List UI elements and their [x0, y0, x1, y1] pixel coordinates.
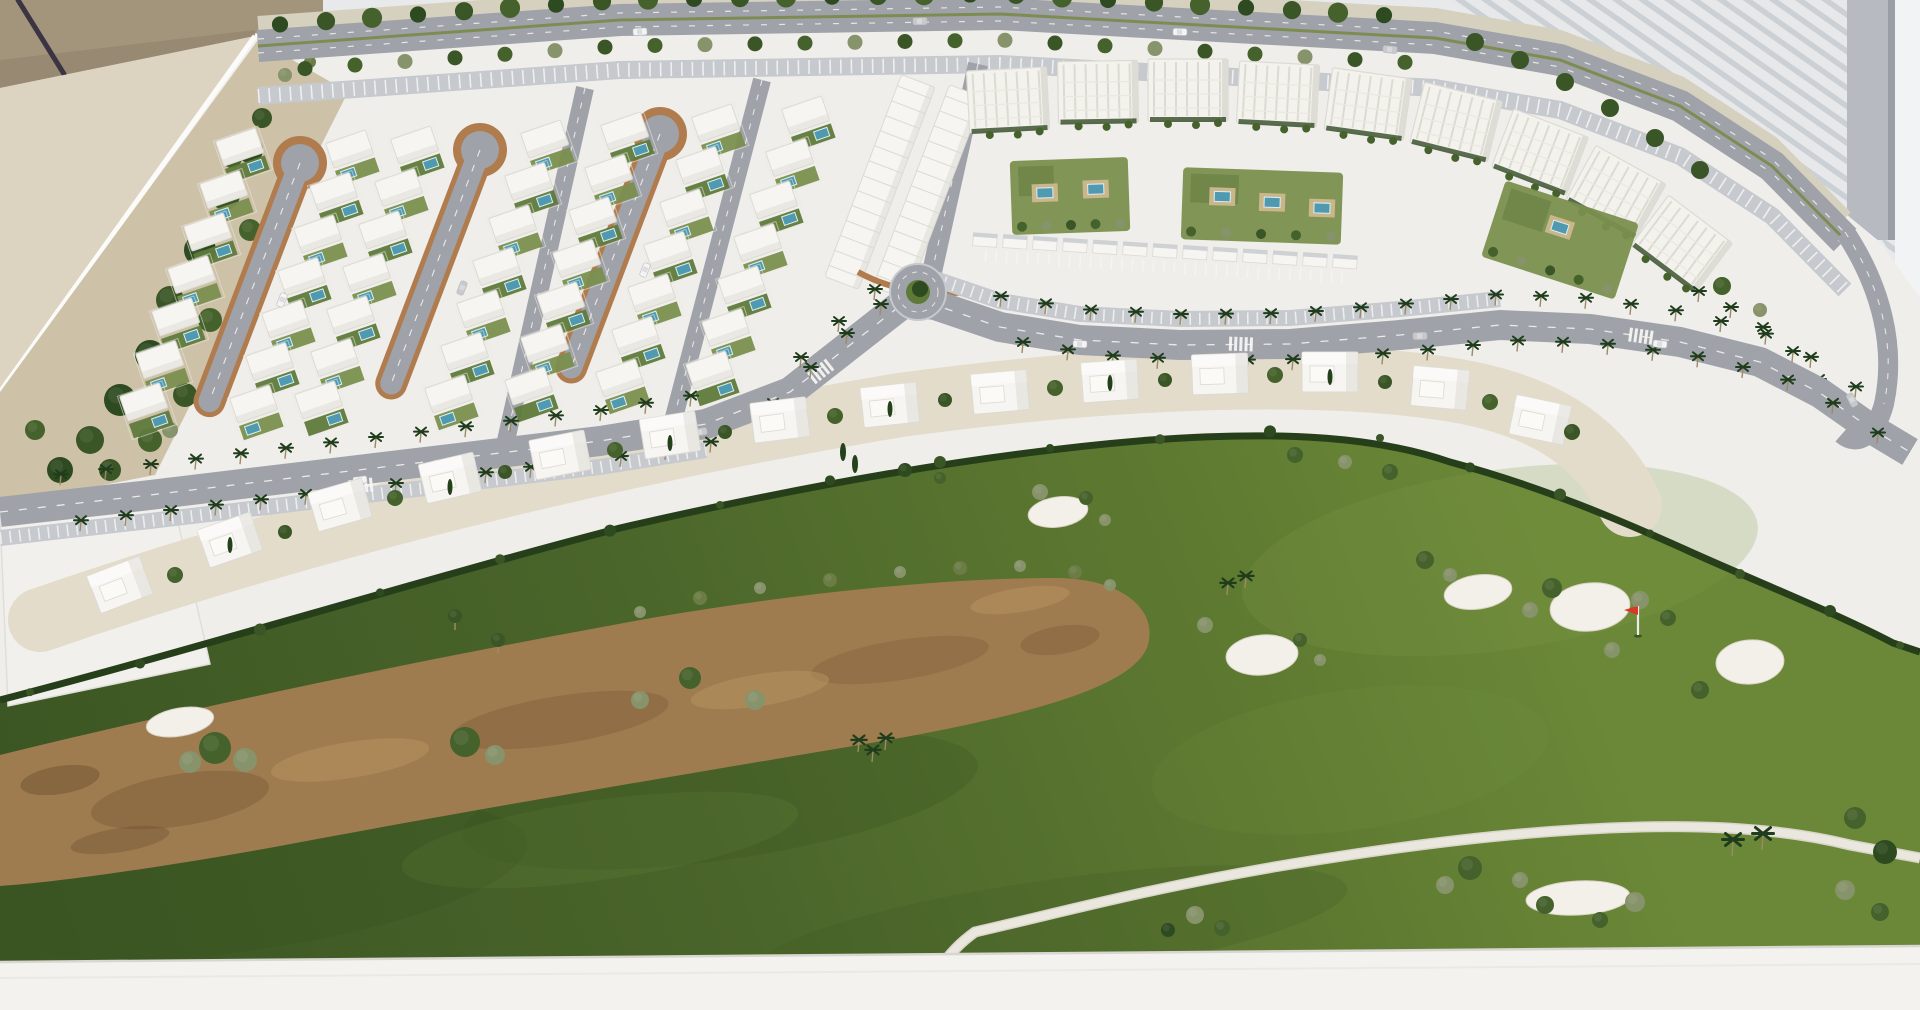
- pool: [1037, 188, 1053, 199]
- palm-trunk: [880, 305, 881, 315]
- tree-highlight: [1461, 858, 1473, 870]
- tree-highlight: [940, 394, 947, 401]
- boulevard-tree: [1556, 73, 1574, 91]
- car-glass: [1077, 341, 1082, 346]
- palm-trunk: [1720, 322, 1721, 332]
- hedge-bush: [1735, 569, 1745, 579]
- tree-highlight: [1188, 908, 1197, 917]
- palm-trunk: [1742, 368, 1743, 378]
- median-tree: [1298, 49, 1313, 64]
- palm-trunk: [1810, 358, 1811, 368]
- palm-trunk: [1832, 404, 1833, 414]
- palm-trunk: [1855, 388, 1856, 398]
- palm-trunk: [872, 751, 873, 762]
- palm-trunk: [645, 404, 646, 414]
- wall-sliver: [1895, 0, 1920, 300]
- median-tree: [398, 54, 413, 69]
- tree-highlight: [609, 444, 617, 452]
- median-tree: [898, 34, 913, 49]
- palm-trunk: [240, 454, 241, 464]
- tree-highlight: [1538, 898, 1547, 907]
- tree-highlight: [955, 562, 962, 569]
- tree-highlight: [1755, 304, 1762, 311]
- hedge-bush: [135, 659, 145, 669]
- boulevard-tree: [1466, 33, 1484, 51]
- architectural-model-photo: [0, 0, 1920, 1010]
- boulevard-tree: [1376, 7, 1392, 23]
- tree-highlight: [633, 693, 642, 702]
- tree-highlight: [1101, 515, 1107, 521]
- palm-trunk: [1270, 314, 1271, 324]
- tree-highlight: [825, 574, 832, 581]
- palm-trunk: [1180, 315, 1181, 325]
- palm-trunk: [1730, 308, 1731, 318]
- car: [633, 28, 647, 36]
- tree-highlight: [900, 464, 907, 471]
- median-tree: [298, 61, 313, 76]
- roof-terrace: [980, 386, 1005, 404]
- garage-unit: [1213, 247, 1238, 262]
- tree-highlight: [1445, 569, 1452, 576]
- car: [1653, 340, 1668, 348]
- pillar: [1847, 0, 1895, 240]
- palm-trunk: [1450, 300, 1451, 310]
- tree-highlight: [748, 692, 758, 702]
- median-tree: [1248, 47, 1263, 62]
- crosswalk-bar: [1250, 337, 1253, 351]
- car: [1073, 340, 1087, 348]
- palm-trunk: [874, 290, 875, 300]
- villa-shade: [1346, 352, 1358, 392]
- garage-unit: [1183, 245, 1208, 260]
- tree-highlight: [636, 607, 642, 613]
- garage-unit: [1033, 236, 1058, 251]
- median-tree: [798, 36, 813, 51]
- roundabout-tree: [912, 281, 928, 297]
- car: [1173, 28, 1187, 35]
- palm-trunk: [1675, 311, 1676, 321]
- median-tree: [948, 33, 963, 48]
- palm-trunk: [1495, 296, 1496, 306]
- tree-highlight: [1438, 878, 1447, 887]
- hedge-bush: [716, 501, 724, 509]
- tree-highlight: [1106, 580, 1112, 586]
- garage-unit: [1063, 238, 1088, 253]
- palm-trunk: [858, 741, 859, 752]
- tree-highlight: [1289, 449, 1297, 457]
- garage-unit: [1123, 242, 1148, 257]
- tree-highlight: [1384, 466, 1392, 474]
- hedge-bush: [376, 588, 384, 596]
- garage-unit: [973, 233, 998, 248]
- boulevard-tree: [272, 16, 288, 32]
- hedge-bush: [26, 688, 34, 696]
- palm-trunk: [1292, 360, 1293, 370]
- crosswalk-bar: [1239, 337, 1242, 351]
- palm-trunk: [800, 358, 801, 368]
- median-tree: [1148, 41, 1163, 56]
- palm-trunk: [1787, 381, 1788, 391]
- palm-trunk: [80, 521, 81, 531]
- cypress: [448, 479, 453, 495]
- boulevard-tree: [1511, 51, 1529, 69]
- roof-terrace: [759, 414, 785, 433]
- palm-trunk: [1022, 343, 1023, 353]
- palm-trunk: [1877, 434, 1878, 444]
- boulevard-tree: [1691, 161, 1709, 179]
- palm-trunk: [1157, 359, 1158, 369]
- car-glass: [1177, 29, 1182, 34]
- car-glass: [1417, 333, 1422, 338]
- pool: [1214, 191, 1230, 202]
- shrub: [1214, 119, 1222, 127]
- roof-terrace: [1419, 380, 1444, 398]
- row-villa: [1410, 366, 1469, 411]
- boulevard-tree: [362, 8, 382, 28]
- car-glass: [1657, 341, 1662, 346]
- apartment-block: [1236, 61, 1320, 135]
- palm-trunk: [1045, 304, 1046, 314]
- tree-highlight: [500, 466, 507, 473]
- row-villa: [970, 370, 1029, 415]
- palm-trunk: [105, 470, 106, 480]
- crosswalk-bar: [1234, 337, 1237, 351]
- roof-terrace: [1200, 368, 1225, 385]
- tree-highlight: [1418, 553, 1427, 562]
- palm-trunk: [600, 411, 601, 421]
- tree-highlight: [1340, 456, 1347, 463]
- car-glass: [637, 29, 642, 34]
- tree-highlight: [829, 410, 837, 418]
- palm-trunk: [1360, 308, 1361, 318]
- hedge-bush: [1046, 444, 1054, 452]
- pool: [1088, 184, 1104, 195]
- row-villa: [1191, 353, 1248, 395]
- palm-trunk: [1540, 297, 1541, 307]
- tree-highlight: [1633, 593, 1642, 602]
- palm-trunk: [1382, 354, 1383, 364]
- tree-highlight: [1160, 374, 1167, 381]
- palm-trunk: [1067, 350, 1068, 360]
- tree-highlight: [1316, 655, 1322, 661]
- palm-trunk: [1652, 351, 1653, 361]
- median-tree: [598, 40, 613, 55]
- pillar-shade: [1888, 0, 1895, 240]
- palm-trunk: [330, 443, 331, 453]
- palm-trunk: [1697, 357, 1698, 367]
- median-tree: [848, 35, 863, 50]
- tree-highlight: [896, 567, 902, 573]
- palm-trunk: [1135, 313, 1136, 323]
- garage-unit: [1243, 249, 1268, 264]
- boulevard-tree: [1646, 129, 1664, 147]
- tree-highlight: [1606, 644, 1614, 652]
- tree-highlight: [493, 634, 500, 641]
- palm-trunk: [125, 516, 126, 526]
- tree-highlight: [1269, 369, 1277, 377]
- cypress: [840, 443, 846, 461]
- tree-highlight: [80, 429, 94, 443]
- palm-trunk: [485, 473, 486, 483]
- tree-highlight: [1524, 604, 1532, 612]
- pool: [1264, 197, 1280, 208]
- palm-trunk: [420, 433, 421, 443]
- palm-trunk: [1427, 351, 1428, 361]
- palm-trunk: [1792, 352, 1793, 362]
- palm-trunk: [150, 465, 151, 475]
- tree-highlight: [1715, 279, 1724, 288]
- median-tree: [1098, 38, 1113, 53]
- apartment-block: [1148, 59, 1228, 129]
- tree-highlight: [1034, 486, 1042, 494]
- tree-highlight: [1662, 612, 1670, 620]
- palm-trunk: [1227, 584, 1228, 595]
- tree-highlight: [160, 289, 174, 303]
- car-glass: [917, 19, 922, 24]
- palm-trunk: [810, 368, 811, 378]
- palm-trunk: [1562, 343, 1563, 353]
- palm-trunk: [1765, 335, 1766, 345]
- tree-highlight: [1876, 842, 1888, 854]
- car: [913, 18, 927, 25]
- garage-unit: [1333, 254, 1358, 269]
- car: [1383, 45, 1398, 53]
- tree-highlight: [203, 735, 219, 751]
- median-tree: [698, 37, 713, 52]
- hedge-bush: [825, 475, 835, 485]
- palm-trunk: [465, 427, 466, 437]
- cypress: [1108, 375, 1113, 391]
- palm-trunk: [1607, 345, 1608, 355]
- tree-highlight: [1484, 396, 1492, 404]
- tree-highlight: [1545, 580, 1555, 590]
- median-tree: [648, 38, 663, 53]
- median-tree: [1348, 52, 1363, 67]
- palm-trunk: [846, 334, 847, 344]
- median-tree: [748, 36, 763, 51]
- villa-shade: [1235, 353, 1248, 393]
- tree-highlight: [1594, 914, 1602, 922]
- tree-highlight: [1566, 426, 1574, 434]
- palm-trunk: [285, 449, 286, 459]
- palm-trunk: [170, 511, 171, 521]
- tree-highlight: [682, 669, 693, 680]
- palm-trunk: [1245, 577, 1246, 588]
- tree-highlight: [389, 492, 397, 500]
- median-tree: [1398, 55, 1413, 70]
- boulevard-tree: [1601, 99, 1619, 117]
- tree-highlight: [242, 221, 253, 232]
- palm-trunk: [215, 506, 216, 516]
- hedge-bush: [495, 554, 505, 564]
- hedge-bush: [934, 456, 946, 468]
- crosswalk-bar: [1229, 337, 1232, 351]
- tree-highlight: [450, 610, 457, 617]
- apartment-block: [1057, 60, 1138, 131]
- tree-highlight: [1016, 561, 1022, 567]
- palm-trunk: [1225, 315, 1226, 325]
- tree-highlight: [1216, 922, 1224, 930]
- shrub: [1164, 120, 1172, 128]
- tree-highlight: [1873, 905, 1882, 914]
- boulevard-tree: [1328, 3, 1348, 23]
- cypress: [888, 401, 893, 417]
- tree-highlight: [488, 747, 498, 757]
- tree-highlight: [1049, 382, 1057, 390]
- garage-unit: [1153, 243, 1178, 258]
- hedge-bush: [1896, 641, 1904, 649]
- hedge-bush: [1824, 605, 1836, 617]
- tree-highlight: [255, 110, 265, 120]
- car-glass: [1387, 47, 1392, 52]
- row-villa: [750, 397, 810, 444]
- tree-highlight: [1081, 492, 1088, 499]
- palm-trunk: [1732, 841, 1733, 856]
- tree-highlight: [1380, 376, 1387, 383]
- tree-highlight: [936, 473, 942, 479]
- hedge-bush: [604, 525, 616, 537]
- tree-highlight: [169, 569, 177, 577]
- tree-highlight: [1514, 874, 1522, 882]
- palm-trunk: [195, 460, 196, 470]
- cypress: [1328, 369, 1333, 385]
- median-tree: [998, 33, 1013, 48]
- tree-highlight: [1295, 634, 1302, 641]
- garage-unit: [1273, 251, 1298, 266]
- tree-highlight: [720, 426, 727, 433]
- tree-highlight: [454, 730, 469, 745]
- shrub: [1192, 121, 1200, 129]
- model-scene: [0, 0, 1920, 1010]
- boulevard-tree: [317, 12, 335, 30]
- garage-unit: [1093, 240, 1118, 255]
- pool: [1314, 203, 1330, 214]
- boulevard-tree: [1283, 1, 1301, 19]
- median-tree: [348, 58, 363, 73]
- median-tree: [1048, 36, 1063, 51]
- cypress: [228, 537, 233, 553]
- hedge-bush: [1554, 489, 1566, 501]
- tree-highlight: [1847, 809, 1858, 820]
- hedge-bush: [1646, 530, 1654, 538]
- hedge-bush: [1155, 434, 1165, 444]
- tree-highlight: [182, 753, 193, 764]
- tree-highlight: [756, 583, 762, 589]
- palm-trunk: [1090, 311, 1091, 321]
- tree-highlight: [1838, 882, 1848, 892]
- palm-trunk: [375, 438, 376, 448]
- garage-unit: [1003, 234, 1028, 249]
- boulevard-tree: [410, 6, 426, 22]
- tree-highlight: [695, 592, 702, 599]
- courtyard: [1181, 167, 1343, 245]
- hedge-bush: [1376, 434, 1384, 442]
- boulevard-tree: [455, 2, 473, 20]
- palm-trunk: [1517, 342, 1518, 352]
- median-tree: [448, 50, 463, 65]
- apartment-block: [966, 67, 1050, 141]
- hedge-bush: [1264, 425, 1276, 437]
- palm-trunk: [838, 322, 839, 332]
- median-tree: [548, 43, 563, 58]
- tree-highlight: [236, 750, 248, 762]
- tree-highlight: [280, 69, 287, 76]
- palm-trunk: [1630, 305, 1631, 315]
- median-tree: [1198, 44, 1213, 59]
- hedge-bush: [1465, 462, 1475, 472]
- tree-highlight: [1693, 683, 1702, 692]
- palm-trunk: [1405, 305, 1406, 315]
- palm-trunk: [60, 475, 61, 485]
- garage-unit: [1303, 252, 1328, 267]
- tree-highlight: [1070, 566, 1077, 573]
- median-tree: [498, 47, 513, 62]
- palm-trunk: [555, 416, 556, 426]
- palm-trunk: [510, 422, 511, 432]
- courtyard: [1010, 157, 1131, 235]
- palm-trunk: [530, 468, 531, 478]
- palm-trunk: [1585, 299, 1586, 309]
- palm-trunk: [885, 739, 886, 750]
- tree-highlight: [1199, 619, 1207, 627]
- tree-highlight: [1163, 924, 1170, 931]
- car: [1413, 332, 1427, 339]
- palm-trunk: [1698, 292, 1699, 302]
- palm-trunk: [305, 495, 306, 505]
- tree-highlight: [28, 422, 38, 432]
- tree-highlight: [280, 526, 287, 533]
- hedge-bush: [254, 623, 266, 635]
- block-shade: [1131, 60, 1138, 122]
- palm-trunk: [1762, 835, 1763, 850]
- tree-highlight: [1628, 894, 1638, 904]
- crosswalk-bar: [1244, 337, 1247, 351]
- block-shade: [1222, 59, 1228, 121]
- cypress: [668, 435, 673, 451]
- palm-trunk: [1472, 346, 1473, 356]
- palm-trunk: [690, 397, 691, 407]
- palm-trunk: [1315, 312, 1316, 322]
- boulevard-tree: [1238, 0, 1254, 16]
- palm-trunk: [260, 500, 261, 510]
- palm-trunk: [710, 443, 711, 453]
- palm-trunk: [620, 457, 621, 467]
- cypress: [852, 455, 858, 473]
- palm-trunk: [1000, 297, 1001, 307]
